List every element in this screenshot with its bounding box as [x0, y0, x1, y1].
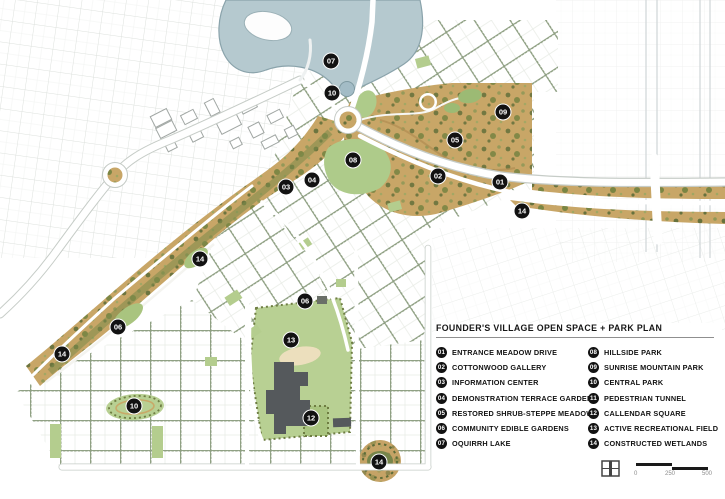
- scale-bar-segment-1: [636, 463, 672, 466]
- map-marker-14: 14: [54, 346, 70, 362]
- map-marker-05: 05: [447, 132, 463, 148]
- legend-divider: [436, 337, 714, 338]
- legend-label-05: RESTORED SHRUB-STEPPE MEADOW: [452, 409, 593, 418]
- legend-item-03: 03INFORMATION CENTER: [436, 375, 588, 390]
- legend-item-12: 12CALLENDAR SQUARE: [588, 406, 722, 421]
- legend-badge-01: 01: [436, 347, 447, 358]
- legend-badge-08: 08: [588, 347, 599, 358]
- legend-label-13: ACTIVE RECREATIONAL FIELD: [604, 424, 718, 433]
- legend-item-08: 08HILLSIDE PARK: [588, 345, 722, 360]
- map-marker-13: 13: [283, 332, 299, 348]
- map-marker-10: 10: [126, 398, 142, 414]
- map-marker-09: 09: [495, 104, 511, 120]
- legend-badge-12: 12: [588, 408, 599, 419]
- legend-item-02: 02COTTONWOOD GALLERY: [436, 360, 588, 375]
- svg-text:14: 14: [375, 458, 384, 467]
- legend-item-05: 05RESTORED SHRUB-STEPPE MEADOW: [436, 406, 588, 421]
- scale-label-250: 250: [665, 471, 675, 477]
- legend-badge-04: 04: [436, 393, 447, 404]
- svg-text:04: 04: [308, 176, 317, 185]
- legend-label-12: CALLENDAR SQUARE: [604, 409, 686, 418]
- svg-text:06: 06: [114, 323, 122, 332]
- legend-item-10: 10CENTRAL PARK: [588, 375, 722, 390]
- svg-text:13: 13: [287, 336, 295, 345]
- svg-text:14: 14: [196, 255, 205, 264]
- legend-badge-06: 06: [436, 423, 447, 434]
- map-marker-03: 03: [278, 179, 294, 195]
- legend-badge-10: 10: [588, 377, 599, 388]
- legend-badge-13: 13: [588, 423, 599, 434]
- legend-badge-14: 14: [588, 438, 599, 449]
- scale-bar-segment-2: [672, 467, 708, 470]
- legend-label-07: OQUIRRH LAKE: [452, 439, 511, 448]
- legend-label-10: CENTRAL PARK: [604, 378, 663, 387]
- legend-label-01: ENTRANCE MEADOW DRIVE: [452, 348, 557, 357]
- legend-label-03: INFORMATION CENTER: [452, 378, 539, 387]
- map-marker-01: 01: [492, 174, 508, 190]
- map-marker-02: 02: [430, 168, 446, 184]
- legend-item-14: 14CONSTRUCTED WETLANDS: [588, 436, 722, 451]
- svg-text:14: 14: [58, 350, 67, 359]
- map-marker-06: 06: [297, 293, 313, 309]
- legend-panel: FOUNDER'S VILLAGE OPEN SPACE + PARK PLAN…: [436, 323, 722, 487]
- legend-item-04: 04DEMONSTRATION TERRACE GARDENS: [436, 391, 588, 406]
- legend-badge-11: 11: [588, 393, 599, 404]
- scale-label-0: 0: [634, 471, 637, 477]
- map-marker-14: 14: [514, 203, 530, 219]
- map-marker-14: 14: [192, 251, 208, 267]
- site-plan-page: 071009050802010304141406061314101214 FOU…: [0, 0, 725, 499]
- legend-badge-09: 09: [588, 362, 599, 373]
- legend-footer: 0 250 500: [436, 459, 722, 487]
- svg-text:10: 10: [130, 402, 138, 411]
- svg-text:01: 01: [496, 178, 504, 187]
- legend-badge-07: 07: [436, 438, 447, 449]
- map-marker-04: 04: [304, 172, 320, 188]
- scale-bar: 0 250 500: [634, 459, 714, 481]
- map-marker-12: 12: [303, 410, 319, 426]
- page-title: FOUNDER'S VILLAGE OPEN SPACE + PARK PLAN: [436, 323, 722, 333]
- lake-pond: [340, 82, 355, 97]
- svg-text:03: 03: [282, 183, 290, 192]
- legend-item-13: 13ACTIVE RECREATIONAL FIELD: [588, 421, 722, 436]
- legend-label-14: CONSTRUCTED WETLANDS: [604, 439, 707, 448]
- map-marker-14: 14: [371, 454, 387, 470]
- legend-item-01: 01ENTRANCE MEADOW DRIVE: [436, 345, 588, 360]
- map-marker-10: 10: [324, 85, 340, 101]
- svg-text:05: 05: [451, 136, 459, 145]
- svg-text:09: 09: [499, 108, 507, 117]
- legend-label-04: DEMONSTRATION TERRACE GARDENS: [452, 394, 598, 403]
- legend-item-11: 11PEDESTRIAN TUNNEL: [588, 391, 722, 406]
- svg-text:08: 08: [349, 156, 357, 165]
- legend-label-08: HILLSIDE PARK: [604, 348, 662, 357]
- svg-text:14: 14: [518, 207, 527, 216]
- svg-text:12: 12: [307, 414, 315, 423]
- svg-text:07: 07: [327, 57, 335, 66]
- legend-badge-02: 02: [436, 362, 447, 373]
- map-marker-08: 08: [345, 152, 361, 168]
- legend-items: 01ENTRANCE MEADOW DRIVE02COTTONWOOD GALL…: [436, 345, 722, 451]
- svg-text:06: 06: [301, 297, 309, 306]
- map-marker-07: 07: [323, 53, 339, 69]
- legend-label-02: COTTONWOOD GALLERY: [452, 363, 546, 372]
- svg-text:10: 10: [328, 89, 336, 98]
- legend-badge-03: 03: [436, 377, 447, 388]
- north-arrow-icon: [598, 459, 624, 481]
- svg-text:02: 02: [434, 172, 442, 181]
- scale-label-500: 500: [702, 471, 712, 477]
- legend-label-06: COMMUNITY EDIBLE GARDENS: [452, 424, 569, 433]
- legend-badge-05: 05: [436, 408, 447, 419]
- legend-label-11: PEDESTRIAN TUNNEL: [604, 394, 686, 403]
- legend-item-06: 06COMMUNITY EDIBLE GARDENS: [436, 421, 588, 436]
- legend-item-07: 07OQUIRRH LAKE: [436, 436, 588, 451]
- legend-label-09: SUNRISE MOUNTAIN PARK: [604, 363, 704, 372]
- legend-item-09: 09SUNRISE MOUNTAIN PARK: [588, 360, 722, 375]
- map-marker-06: 06: [110, 319, 126, 335]
